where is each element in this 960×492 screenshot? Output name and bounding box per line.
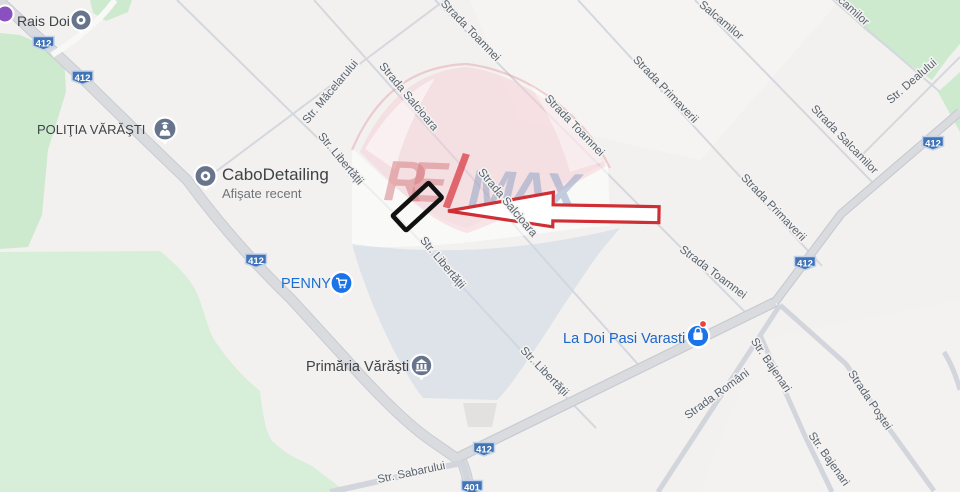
svg-text:412: 412 [248,256,264,267]
svg-text:PENNY: PENNY [281,276,331,292]
svg-text:412: 412 [75,73,91,84]
svg-text:412: 412 [797,259,813,270]
svg-text:Primăria Vărăşti: Primăria Vărăşti [306,359,409,375]
svg-text:Afişate recent: Afişate recent [222,186,302,201]
svg-text:RE: RE [383,149,451,215]
svg-text:401: 401 [464,483,481,492]
svg-text:CaboDetailing: CaboDetailing [222,165,329,184]
svg-text:La Doi Pasi Varasti: La Doi Pasi Varasti [563,331,685,347]
svg-text:412: 412 [925,139,941,150]
svg-text:POLIŢIA VĂRĂŞTI: POLIŢIA VĂRĂŞTI [37,122,145,137]
svg-text:412: 412 [36,39,52,50]
svg-text:412: 412 [476,445,492,456]
svg-text:Rais Doi: Rais Doi [17,13,70,29]
